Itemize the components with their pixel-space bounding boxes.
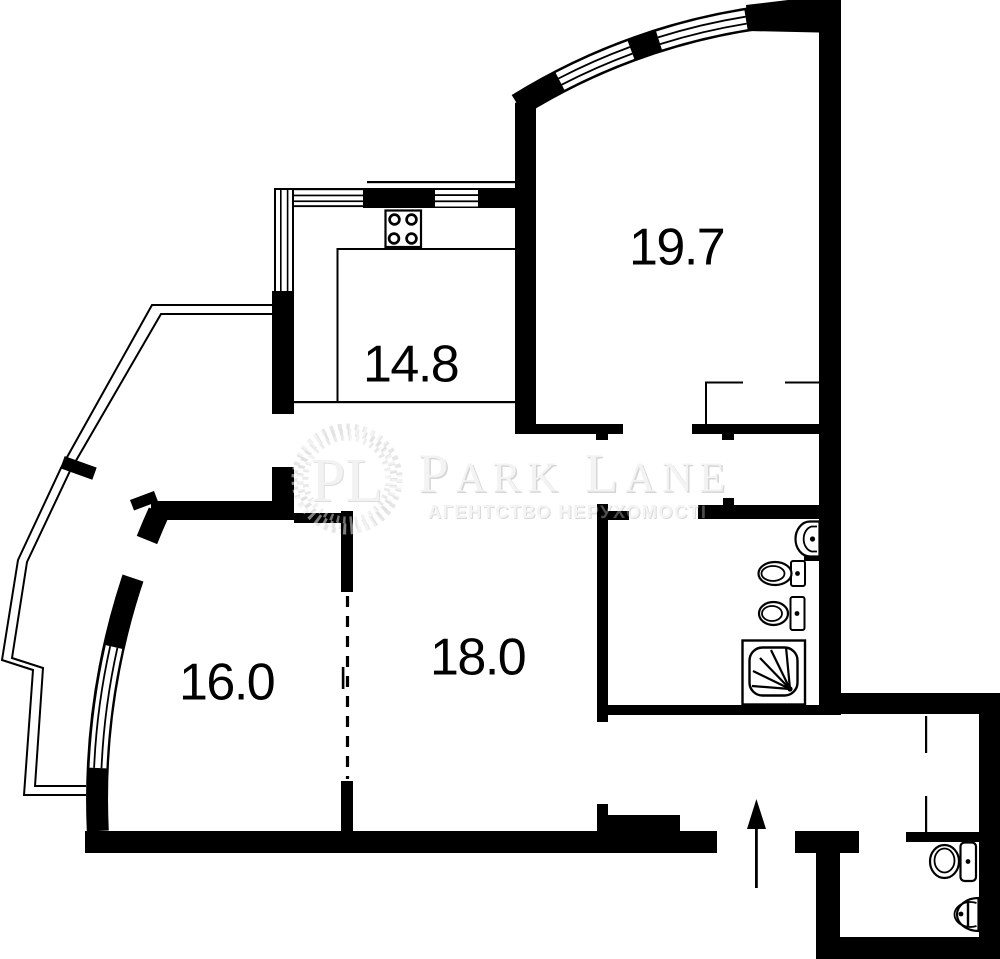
svg-text:18.0: 18.0 [430,629,525,687]
svg-text:19.7: 19.7 [629,219,724,277]
svg-text:14.8: 14.8 [363,336,458,394]
svg-text:АГЕНТСТВО НЕРУХОМОСТІ: АГЕНТСТВО НЕРУХОМОСТІ [428,502,707,522]
svg-text:PL: PL [311,447,383,515]
svg-text:16.0: 16.0 [179,654,274,712]
